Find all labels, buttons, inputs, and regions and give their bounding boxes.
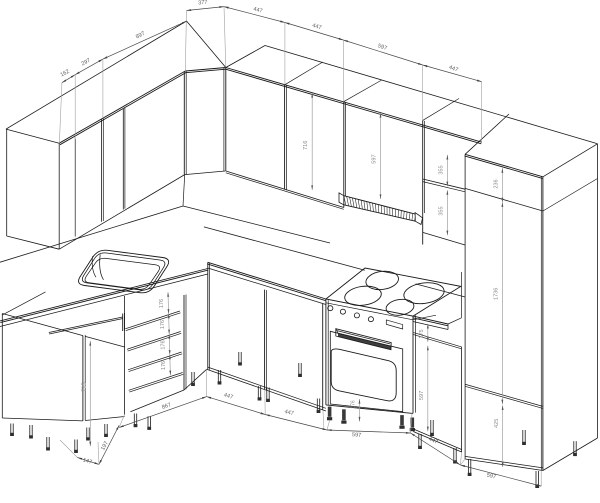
svg-text:597: 597 [419, 391, 425, 400]
svg-text:716: 716 [303, 141, 309, 150]
svg-text:176: 176 [160, 320, 166, 329]
svg-text:176: 176 [161, 361, 167, 370]
svg-text:175: 175 [419, 329, 425, 338]
svg-text:176: 176 [160, 340, 166, 349]
svg-text:355: 355 [438, 206, 444, 215]
svg-text:176: 176 [159, 299, 165, 308]
svg-text:236: 236 [494, 179, 500, 188]
svg-text:377: 377 [198, 0, 208, 6]
svg-text:425: 425 [494, 419, 500, 428]
svg-text:715: 715 [82, 382, 88, 391]
svg-text:176: 176 [351, 400, 357, 409]
svg-text:355: 355 [438, 165, 444, 174]
svg-text:1736: 1736 [494, 288, 500, 300]
svg-text:597: 597 [372, 154, 378, 163]
svg-text:597: 597 [352, 432, 362, 439]
